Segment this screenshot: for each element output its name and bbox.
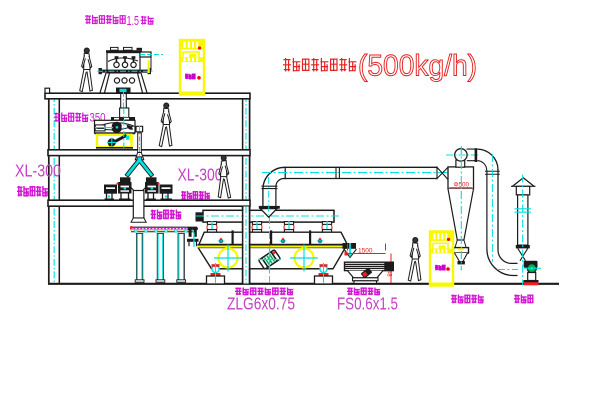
svg-text:XL-300: XL-300: [15, 161, 61, 181]
svg-text:ZLG6x0.75: ZLG6x0.75: [227, 294, 295, 314]
svg-text:1.5: 1.5: [127, 13, 140, 28]
svg-text:FS0.6x1.5: FS0.6x1.5: [337, 294, 398, 314]
svg-text:(500kg/h): (500kg/h): [358, 50, 477, 83]
svg-text:XL-300: XL-300: [178, 165, 223, 185]
svg-text:1500: 1500: [358, 248, 373, 255]
